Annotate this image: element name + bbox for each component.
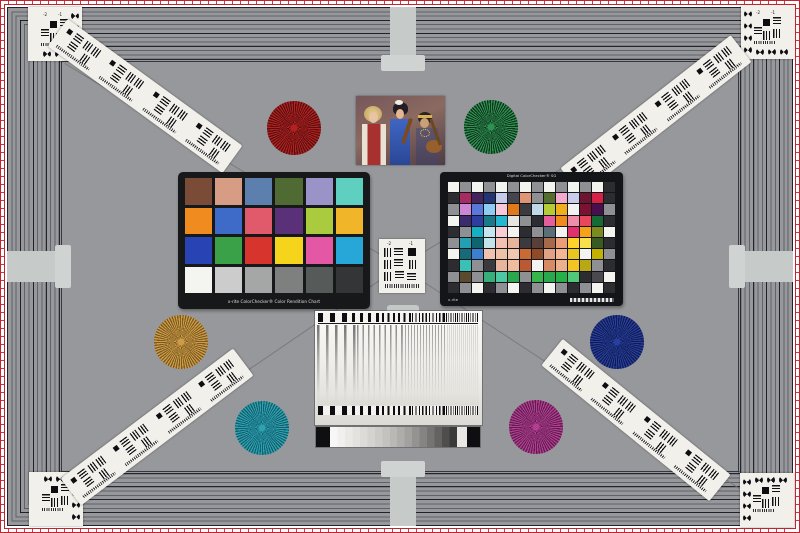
sg-patch (496, 238, 507, 248)
sweep-bar-row-bottom (318, 406, 478, 415)
cc-patch (336, 237, 363, 264)
resolution-bars (773, 17, 781, 24)
resolution-bars (587, 151, 598, 162)
resolution-bars (130, 429, 141, 440)
tablet-black-cap-right (467, 427, 480, 447)
star-red (267, 101, 321, 155)
sg-patch (520, 227, 531, 237)
cc-patch (275, 237, 302, 264)
resolution-bars (385, 284, 419, 288)
sg-patch (544, 182, 555, 192)
sg-patch (568, 238, 579, 248)
sg-patch (568, 216, 579, 226)
sg-patch (520, 193, 531, 203)
sg-patch (532, 260, 543, 270)
sg-patch (472, 182, 483, 192)
sg-patch (604, 272, 615, 282)
sg-patch (448, 249, 459, 259)
usaf-target-bottomright: -2-1 (740, 473, 794, 527)
sg-patch (568, 204, 579, 214)
usaf-number: -2 (756, 11, 760, 15)
sg-patch (460, 216, 471, 226)
cc-patch (336, 208, 363, 235)
sg-patch (508, 193, 519, 203)
sg-patch (448, 182, 459, 192)
resolution-bars (109, 60, 116, 67)
quadrant-marker-icon (743, 478, 751, 486)
sg-patch (460, 272, 471, 282)
resolution-bars (50, 21, 57, 28)
cc-patch (185, 237, 212, 264)
photo-necklace (420, 129, 430, 137)
sg-patch (496, 204, 507, 214)
sg-patch (580, 260, 591, 270)
sg-patch (508, 182, 519, 192)
sg-patch (544, 216, 555, 226)
sg-patch (556, 227, 567, 237)
sg-patch (496, 216, 507, 226)
sg-patch (496, 249, 507, 259)
sg-patch (460, 260, 471, 270)
sg-patch (556, 283, 567, 293)
sg-patch (604, 204, 615, 214)
resolution-bars (180, 391, 191, 402)
sg-patch (460, 204, 471, 214)
resolution-bars (51, 486, 58, 493)
right-edge-cross-tab (729, 245, 745, 288)
resolution-bars (685, 449, 692, 456)
sg-title: Digital ColorChecker® SG (454, 174, 610, 178)
resolution-bars (215, 365, 226, 376)
camera-test-chart: -2-1 -2-1 -2-1 -2-1 x-rite ColorChecker®… (0, 0, 800, 533)
resolution-bars (595, 145, 606, 156)
sg-patch (508, 272, 519, 282)
sg-patch (592, 283, 603, 293)
usaf-number: -1 (409, 242, 413, 246)
cc-patch (275, 208, 302, 235)
resolution-bars (708, 469, 719, 480)
sg-patch (496, 193, 507, 203)
quadrant-marker-icon (43, 50, 51, 58)
sg-patch (580, 272, 591, 282)
star-orange (154, 315, 208, 369)
sg-patch (568, 193, 579, 203)
sg-patch (532, 204, 543, 214)
sg-patch (580, 283, 591, 293)
sg-patch (568, 182, 579, 192)
sg-patch (532, 216, 543, 226)
sg-patch (568, 283, 579, 293)
photo-left-face (369, 112, 378, 123)
resolution-bars (763, 19, 770, 26)
sg-patch (580, 227, 591, 237)
usaf-number: -1 (771, 11, 775, 15)
resolution-bars (198, 381, 205, 388)
sg-patch (508, 204, 519, 214)
resolution-bars (643, 428, 654, 439)
resolution-bars (384, 260, 391, 269)
colorchecker-24-chart: x-rite ColorChecker® Color Rendition Cha… (178, 172, 370, 309)
quadrant-marker-icon (72, 513, 80, 521)
register-ticks-left (1, 8, 4, 525)
resolution-bars (408, 248, 416, 256)
center-usaf-target: -2-1 (379, 239, 425, 293)
tablet-light-cell (457, 427, 467, 447)
usaf-number: -2 (44, 478, 48, 482)
resolution-bars (116, 64, 127, 75)
cc-patch (336, 178, 363, 205)
cc-patch (275, 267, 302, 294)
sg-patch (508, 283, 519, 293)
register-ticks-right (796, 8, 799, 525)
sg-patch (532, 283, 543, 293)
usaf-number: -2 (387, 242, 391, 246)
musicians-test-photo (356, 96, 445, 165)
quadrant-marker-icon (743, 502, 751, 510)
resolution-bars (202, 127, 213, 138)
resolution-bars (177, 109, 188, 120)
sg-patch (568, 272, 579, 282)
sg-patch (556, 193, 567, 203)
sg-patch (568, 227, 579, 237)
cc-patch (336, 267, 363, 294)
resolution-bars (709, 67, 720, 78)
cc-patch (215, 208, 242, 235)
sg-patch (496, 227, 507, 237)
usaf-number: -1 (770, 479, 774, 483)
sg-patch (496, 272, 507, 282)
resolution-bars (211, 380, 222, 391)
sg-patch (544, 238, 555, 248)
register-ticks-bottom (8, 529, 792, 532)
sg-patch (544, 227, 555, 237)
sg-patch (580, 216, 591, 226)
sg-patch (484, 182, 495, 192)
sg-patch (544, 204, 555, 214)
sg-patch (592, 216, 603, 226)
resolution-bars (90, 47, 101, 58)
sg-patch (592, 249, 603, 259)
photo-middle-headdress (395, 100, 403, 105)
sg-patch (556, 249, 567, 259)
resolution-bars (754, 41, 776, 44)
resolution-bars (754, 27, 762, 34)
resolution-bars (73, 33, 84, 44)
resolution-bars (561, 361, 572, 372)
resolution-bars (133, 78, 144, 89)
resolution-bars (584, 368, 595, 379)
sg-patch (448, 193, 459, 203)
resolution-bars (773, 29, 780, 38)
resolution-bars (42, 508, 64, 511)
sg-patch (484, 204, 495, 214)
sg-gray-scale-ruler (570, 298, 614, 302)
sg-patch (520, 238, 531, 248)
usaf-number: -1 (58, 13, 62, 17)
sg-patch (556, 204, 567, 214)
sg-patch (508, 227, 519, 237)
sg-patch (532, 193, 543, 203)
resolution-bars (220, 140, 231, 151)
resolution-bars (696, 68, 703, 75)
cc-patch (185, 208, 212, 235)
resolution-bars (152, 91, 159, 98)
resolution-bars (409, 260, 416, 269)
resolution-bars (643, 416, 650, 423)
sg-patch (460, 182, 471, 192)
quadrant-marker-icon (744, 34, 752, 42)
sg-patch (472, 216, 483, 226)
sg-patch (592, 238, 603, 248)
sg-patch (580, 249, 591, 259)
quadrant-marker-icon (756, 48, 764, 56)
resolution-bars (654, 101, 661, 108)
resolution-bars (155, 413, 162, 420)
resolution-bars (753, 495, 761, 502)
resolution-bars (196, 135, 207, 146)
cc-patch (306, 178, 333, 205)
sg-patch (604, 283, 615, 293)
resolution-bars (691, 454, 702, 465)
sg-patch (604, 216, 615, 226)
sg-patch (520, 249, 531, 259)
sg-patch (472, 260, 483, 270)
register-ticks-top (8, 1, 792, 4)
sg-patch (520, 272, 531, 282)
sg-patch (556, 216, 567, 226)
photo-left-dress (362, 124, 386, 165)
sg-patch (472, 227, 483, 237)
sg-patch (460, 227, 471, 237)
quadrant-marker-icon (71, 12, 79, 20)
sg-patch (556, 238, 567, 248)
sg-patch (604, 193, 615, 203)
sg-patch (460, 249, 471, 259)
cc-patch (215, 237, 242, 264)
sweep-bar-row-top (318, 313, 478, 322)
resolution-bars (602, 382, 609, 389)
resolution-bars (407, 273, 416, 280)
sg-patch (448, 238, 459, 248)
resolution-bars (41, 29, 49, 36)
resolution-bars (42, 494, 50, 501)
quadrant-marker-icon (780, 48, 788, 56)
resolution-bars (394, 248, 403, 255)
resolution-bars (625, 402, 636, 413)
sg-patch (472, 249, 483, 259)
sg-patch (448, 227, 459, 237)
sg-patch (556, 182, 567, 192)
quadrant-marker-icon (768, 48, 776, 56)
sg-patch (472, 193, 483, 203)
quadrant-marker-icon (744, 22, 752, 30)
quadrant-marker-icon (743, 514, 751, 522)
colorchecker-label: x-rite ColorChecker® Color Rendition Cha… (192, 300, 355, 304)
sg-patch (508, 260, 519, 270)
sg-patch (580, 238, 591, 248)
sg-patch (532, 238, 543, 248)
resolution-bars (153, 104, 164, 115)
sg-patch (448, 260, 459, 270)
colorchecker-sg-chart: Digital ColorChecker® SG x-rite (440, 172, 623, 306)
resolution-bars (561, 349, 568, 356)
star-teal (235, 401, 289, 455)
resolution-bars (110, 72, 121, 83)
resolution-bars (394, 259, 403, 266)
sg-patch (448, 204, 459, 214)
sg-patch (592, 227, 603, 237)
resolution-bars (395, 271, 404, 278)
sg-patch (556, 260, 567, 270)
resolution-bars (637, 112, 648, 123)
sg-patch (496, 182, 507, 192)
quadrant-marker-icon (743, 490, 751, 498)
resolution-bars (671, 85, 682, 96)
sweep-line-body (317, 325, 479, 405)
resolution-bars (61, 496, 68, 505)
sg-patch (604, 227, 615, 237)
sg-patch (544, 272, 555, 282)
sg-patch (592, 182, 603, 192)
sweep-hairline (318, 323, 478, 324)
sg-patch (592, 260, 603, 270)
sg-patch (520, 283, 531, 293)
resolution-bars (384, 248, 391, 257)
cc-patch (245, 267, 272, 294)
top-edge-cross-tab (381, 55, 425, 71)
sg-patch (604, 182, 615, 192)
star-green (464, 100, 518, 154)
resolution-bars (762, 487, 769, 494)
sg-logo: x-rite (448, 298, 458, 302)
sg-patch (484, 272, 495, 282)
sg-patch (460, 283, 471, 293)
cc-patch (245, 237, 272, 264)
resolution-bars (168, 412, 179, 423)
tablet-gray-ramp (330, 427, 457, 447)
sg-patch (472, 204, 483, 214)
sg-patch (496, 283, 507, 293)
sg-patch (460, 238, 471, 248)
bottom-edge-cross-tab (381, 461, 425, 477)
resolution-bars (608, 387, 619, 398)
tablet-black-cap-left (316, 427, 330, 447)
sg-patch (580, 182, 591, 192)
usaf-number: -2 (755, 479, 759, 483)
sg-patch (604, 260, 615, 270)
frequency-sweep-panel (315, 311, 482, 425)
sg-patch (508, 238, 519, 248)
resolution-bars (70, 477, 77, 484)
sg-patch (592, 193, 603, 203)
sg-patch (448, 283, 459, 293)
colorchecker-grid (185, 178, 363, 293)
sg-patch (544, 193, 555, 203)
sg-patch (520, 182, 531, 192)
sg-patch (604, 249, 615, 259)
star-magenta (509, 400, 563, 454)
sg-patch (472, 272, 483, 282)
resolution-bars (625, 133, 636, 144)
sg-patch (532, 227, 543, 237)
resolution-bars (650, 421, 661, 432)
cc-patch (215, 267, 242, 294)
cc-patch (245, 208, 272, 235)
sg-patch (592, 204, 603, 214)
resolution-bars (713, 52, 724, 63)
resolution-bars (629, 118, 640, 129)
sg-patch (520, 216, 531, 226)
sg-patch (484, 216, 495, 226)
usaf-target-topright: -2-1 (741, 5, 795, 59)
resolution-bars (67, 41, 78, 52)
resolution-bars (602, 395, 613, 406)
cc-patch (306, 208, 333, 235)
quadrant-marker-icon (779, 476, 787, 484)
sg-patch (544, 249, 555, 259)
resolution-bars (95, 456, 106, 467)
cc-patch (306, 237, 333, 264)
resolution-bars (772, 497, 779, 506)
sg-patch (472, 238, 483, 248)
sg-patch (484, 283, 495, 293)
sg-grid (448, 182, 615, 293)
resolution-bars (159, 96, 170, 107)
sg-patch (532, 272, 543, 282)
usaf-number: -2 (43, 13, 47, 17)
resolution-bars (679, 79, 690, 90)
resolution-bars (125, 444, 136, 455)
cc-patch (306, 267, 333, 294)
resolution-bars (66, 29, 73, 36)
photo-middle-face (396, 109, 404, 119)
sg-patch (484, 238, 495, 248)
resolution-bars (384, 272, 391, 281)
sg-patch (484, 193, 495, 203)
resolution-bars (685, 462, 696, 473)
sg-patch (568, 249, 579, 259)
sg-patch (580, 204, 591, 214)
sg-patch (556, 272, 567, 282)
photo-right-face (420, 118, 429, 128)
sg-patch (484, 260, 495, 270)
resolution-bars (113, 445, 120, 452)
grayscale-step-tablet (316, 427, 480, 447)
sg-patch (484, 249, 495, 259)
cc-patch (185, 178, 212, 205)
resolution-bars (223, 359, 234, 370)
resolution-bars (612, 133, 619, 140)
sg-patch (508, 216, 519, 226)
resolution-bars (51, 498, 58, 507)
resolution-bars (762, 499, 769, 508)
resolution-bars (772, 485, 780, 492)
sg-patch (580, 193, 591, 203)
sg-patch (448, 272, 459, 282)
sg-patch (520, 204, 531, 214)
cc-patch (185, 267, 212, 294)
sg-patch (448, 216, 459, 226)
resolution-bars (753, 509, 775, 512)
sg-patch (472, 283, 483, 293)
cc-patch (245, 178, 272, 205)
resolution-bars (667, 100, 678, 111)
cc-patch (275, 178, 302, 205)
sg-patch (508, 249, 519, 259)
resolution-bars (721, 46, 732, 57)
sg-patch (532, 249, 543, 259)
resolution-bars (666, 435, 677, 446)
